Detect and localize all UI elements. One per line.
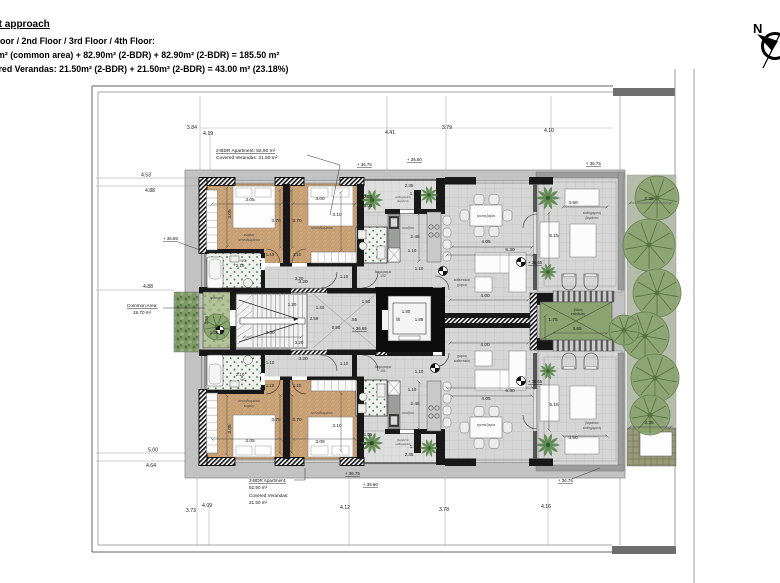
svg-text:1.10: 1.10 xyxy=(415,266,424,271)
svg-text:1.75: 1.75 xyxy=(548,317,558,323)
svg-text:5.00: 5.00 xyxy=(148,448,158,454)
svg-text:19.70 m²: 19.70 m² xyxy=(133,310,152,315)
svg-text:+ 36.65: + 36.65 xyxy=(163,236,178,241)
svg-text:1.05: 1.05 xyxy=(364,203,373,208)
svg-text:1.88: 1.88 xyxy=(415,317,424,322)
svg-text:N: N xyxy=(753,21,762,36)
svg-text:82.90 m²: 82.90 m² xyxy=(249,485,268,490)
svg-text:6.30: 6.30 xyxy=(505,388,515,394)
svg-text:+ 36.60: + 36.60 xyxy=(363,482,378,487)
svg-text:4.05: 4.05 xyxy=(481,239,491,245)
svg-text:καθιστικός: καθιστικός xyxy=(454,278,471,282)
svg-text:3.84: 3.84 xyxy=(187,125,197,131)
svg-text:101: 101 xyxy=(380,369,386,373)
svg-text:6.30: 6.30 xyxy=(505,247,515,253)
svg-text:3.65: 3.65 xyxy=(572,326,582,332)
svg-text:4.05: 4.05 xyxy=(481,396,491,402)
svg-text:3.79: 3.79 xyxy=(442,125,452,131)
svg-text:5.15: 5.15 xyxy=(549,402,559,408)
svg-text:2.45: 2.45 xyxy=(410,401,420,407)
svg-text:WC: WC xyxy=(240,378,246,382)
svg-text:5.15: 5.15 xyxy=(549,233,559,239)
svg-text:3.73: 3.73 xyxy=(186,508,196,514)
svg-text:χώρος: χώρος xyxy=(457,283,468,287)
svg-text:1.10: 1.10 xyxy=(266,252,275,257)
svg-text:1.10: 1.10 xyxy=(266,360,275,365)
svg-text:2-BDR Apartment:: 2-BDR Apartment: xyxy=(249,478,286,483)
svg-text:Common Area:: Common Area: xyxy=(127,303,158,308)
svg-text:1.50: 1.50 xyxy=(362,299,371,304)
svg-text:1.10: 1.10 xyxy=(340,274,349,279)
svg-text:υπνοδωμάτιο: υπνοδωμάτιο xyxy=(238,399,259,403)
svg-text:4.12: 4.12 xyxy=(340,505,350,511)
svg-text:1.10: 1.10 xyxy=(340,361,349,366)
svg-text:3.70: 3.70 xyxy=(271,218,281,224)
svg-text:3.05: 3.05 xyxy=(245,197,255,203)
svg-text:+ 36.75: + 36.75 xyxy=(586,161,601,166)
svg-text:1.20: 1.20 xyxy=(288,302,297,307)
svg-text:.55: .55 xyxy=(351,317,358,322)
svg-text:κουζίνα: κουζίνα xyxy=(402,411,413,415)
svg-text:2.45: 2.45 xyxy=(410,234,420,240)
svg-text:κύριος: κύριος xyxy=(244,404,255,408)
svg-text:1.10: 1.10 xyxy=(410,444,419,449)
svg-text:3.05: 3.05 xyxy=(227,424,233,434)
svg-text:3.00: 3.00 xyxy=(315,196,325,202)
svg-text:1.40: 1.40 xyxy=(316,305,325,310)
svg-text:υπνοδωμάτιο: υπνοδωμάτιο xyxy=(311,226,332,230)
svg-text:3.00: 3.00 xyxy=(315,439,325,445)
svg-text:3.20: 3.20 xyxy=(295,340,304,345)
svg-text:3.50: 3.50 xyxy=(568,200,578,206)
svg-text:2.00: 2.00 xyxy=(364,441,373,446)
svg-text:1.10: 1.10 xyxy=(293,252,302,257)
svg-text:4.41: 4.41 xyxy=(385,130,395,136)
svg-text:1.80: 1.80 xyxy=(402,309,411,314)
svg-text:+ 36.65: + 36.65 xyxy=(528,379,543,384)
svg-text:+ 36.60: + 36.60 xyxy=(407,157,422,162)
svg-text:κύριος: κύριος xyxy=(244,233,255,237)
svg-text:+ 36.75: + 36.75 xyxy=(558,478,573,483)
svg-text:3.20: 3.20 xyxy=(298,356,308,362)
svg-text:3.30: 3.30 xyxy=(265,330,275,336)
svg-text:4.16: 4.16 xyxy=(541,504,551,510)
svg-text:2.35: 2.35 xyxy=(405,452,414,457)
svg-text:3.70: 3.70 xyxy=(292,218,302,224)
svg-text:κουζίνα: κουζίνα xyxy=(402,226,413,230)
svg-text:3.05: 3.05 xyxy=(227,209,233,219)
svg-text:τραπεζαρία: τραπεζαρία xyxy=(477,214,495,218)
svg-text:21.50 m²: 21.50 m² xyxy=(249,500,268,505)
svg-text:2.59: 2.59 xyxy=(310,316,319,321)
svg-text:3.78: 3.78 xyxy=(439,507,449,513)
svg-text:2.35: 2.35 xyxy=(405,183,414,188)
svg-text:+ 36.75: + 36.75 xyxy=(345,471,360,476)
svg-text:τραπεζαρία: τραπεζαρία xyxy=(477,423,495,427)
svg-text:1.05: 1.05 xyxy=(364,432,373,437)
svg-text:καθιστικός: καθιστικός xyxy=(454,359,471,363)
svg-text:επένδυση: επένδυση xyxy=(571,312,585,316)
svg-text:2.10: 2.10 xyxy=(236,372,245,377)
svg-text:0.90: 0.90 xyxy=(332,325,341,330)
svg-text:+ 36.65: + 36.65 xyxy=(352,326,367,331)
svg-text:+ 36.75: + 36.75 xyxy=(357,162,372,167)
svg-text:βεράντα: βεράντα xyxy=(585,421,598,425)
svg-text:4.19: 4.19 xyxy=(203,131,213,137)
svg-text:1.30: 1.30 xyxy=(210,330,219,335)
svg-text:3.70: 3.70 xyxy=(271,417,281,423)
svg-text:υπνοδωμάτιο: υπνοδωμάτιο xyxy=(311,411,332,415)
svg-text:3.20: 3.20 xyxy=(295,276,304,281)
svg-text:3.10: 3.10 xyxy=(332,212,342,218)
svg-text:1.10: 1.10 xyxy=(415,369,424,374)
svg-text:4.00: 4.00 xyxy=(480,293,490,299)
svg-text:1.10: 1.10 xyxy=(410,191,419,196)
svg-text:2.35: 2.35 xyxy=(644,420,654,426)
svg-text:Covered Verandas: 21.50 m²: Covered Verandas: 21.50 m² xyxy=(216,155,278,161)
svg-text:Covered Verandas:: Covered Verandas: xyxy=(249,493,288,498)
svg-text:4.64: 4.64 xyxy=(146,463,156,469)
svg-text:καθημερινή: καθημερινή xyxy=(395,442,410,446)
svg-text:χώρος: χώρος xyxy=(457,354,468,358)
svg-text:1.10: 1.10 xyxy=(293,383,302,388)
svg-text:+ 36.65: + 36.65 xyxy=(528,260,543,265)
svg-text:2-BDR Apartment: 82.90 m²: 2-BDR Apartment: 82.90 m² xyxy=(216,148,276,154)
svg-text:2.55: 2.55 xyxy=(204,315,209,324)
svg-text:4.53: 4.53 xyxy=(141,173,151,179)
svg-text:φύτευση: φύτευση xyxy=(210,296,223,300)
svg-text:2.35: 2.35 xyxy=(644,196,654,202)
svg-text:4.09: 4.09 xyxy=(202,503,212,509)
svg-text:3.70: 3.70 xyxy=(292,417,302,423)
svg-text:καθημερινή: καθημερινή xyxy=(583,211,601,215)
svg-text:4.88: 4.88 xyxy=(143,284,153,290)
svg-text:βεράντα: βεράντα xyxy=(398,199,409,203)
svg-text:3.10: 3.10 xyxy=(332,423,342,429)
svg-text:1.10: 1.10 xyxy=(408,387,417,392)
svg-text:4.88: 4.88 xyxy=(145,188,155,194)
svg-text:βεράντα: βεράντα xyxy=(398,438,409,442)
svg-text:βεράντα: βεράντα xyxy=(585,216,598,220)
svg-text:102: 102 xyxy=(380,274,386,278)
svg-text:1.10: 1.10 xyxy=(266,383,275,388)
svg-text:καθημερινή: καθημερινή xyxy=(583,426,601,430)
svg-text:1.10: 1.10 xyxy=(408,248,417,253)
svg-text:υπνοδωμάτιο: υπνοδωμάτιο xyxy=(238,238,259,242)
svg-text:2.00: 2.00 xyxy=(364,194,373,199)
svg-text:4.10: 4.10 xyxy=(544,128,554,134)
svg-text:2.10: 2.10 xyxy=(236,263,245,268)
